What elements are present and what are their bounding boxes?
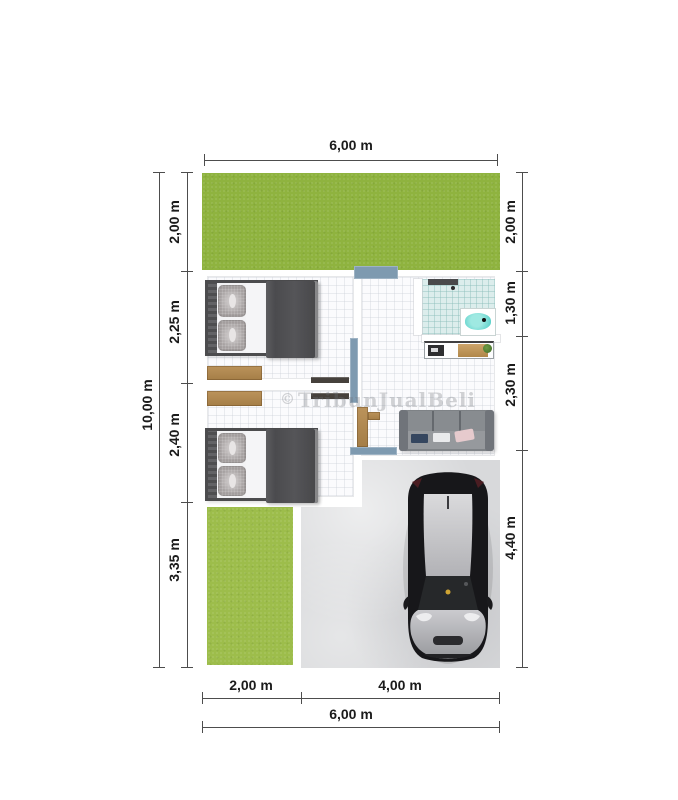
dim-left-total-line [159,172,160,668]
shower-fixture [428,279,458,285]
dim-right-seg-line [522,172,523,668]
kitchen-counter [424,341,494,359]
dim-tick [516,172,528,173]
bathtub-drain [482,318,486,322]
dim-right-seg-3: 4,40 m [502,503,518,573]
bedroom2-bed [205,428,318,501]
sofa-pillow-white [433,433,450,442]
watermark-text: TribunJualBeli [298,388,476,412]
plant [483,344,492,353]
dim-tick [181,271,193,272]
car [402,468,494,666]
sofa-back-cushions [408,411,485,431]
dim-tick [202,721,203,733]
watermark: ©TribunJualBeli [280,388,476,412]
dim-right-seg-1: 1,30 m [502,268,518,338]
dim-bottom-seg-line [202,698,500,699]
dim-left-seg-2: 2,40 m [166,400,182,470]
carport-door [350,447,397,455]
entry-door [354,266,398,279]
back-yard-grass [207,507,293,665]
floor-plan: ©TribunJualBeli [202,172,500,668]
kitchen-sink [428,345,444,356]
living-cabinet-side [368,412,380,420]
bed-blanket [266,281,318,358]
bed-blanket [266,429,318,503]
dim-tick [181,667,193,668]
dim-right-seg-0: 2,00 m [502,187,518,257]
dim-tick [499,721,500,733]
dim-bottom-seg-0: 2,00 m [211,677,291,693]
bathtub-basin [465,313,491,330]
dim-right-seg-2: 2,30 m [502,350,518,420]
watermark-symbol: © [280,390,296,408]
dim-bottom-total-label: 6,00 m [311,706,391,722]
floorplan-canvas: 6,00 m 10,00 m 2,00 m 2,25 m 2,40 m 3,35… [0,0,678,800]
dim-tick [516,667,528,668]
dim-tick [181,502,193,503]
front-yard-grass [202,173,500,270]
sofa-armrest [485,410,494,451]
bedroom1-desk [207,366,262,380]
dim-bottom-total-line [202,727,500,728]
floor-drain [451,286,455,290]
bedroom1-bed [205,280,318,356]
dim-tick [204,154,205,166]
dim-top-total-label: 6,00 m [301,137,401,153]
bed-headboard [208,283,217,353]
dim-tick [497,154,498,166]
dim-tick [499,692,500,704]
bathtub [461,309,495,335]
sofa-pillow-navy [411,434,428,443]
dim-left-seg-1: 2,25 m [166,287,182,357]
dim-bottom-seg-1: 4,00 m [360,677,440,693]
dim-tick [153,667,165,668]
bedroom2-desk [207,391,262,406]
bed-pillows [218,433,246,496]
sofa-armrest [399,410,408,451]
dim-tick [153,172,165,173]
dim-tick [181,172,193,173]
dim-left-seg-3: 3,35 m [166,525,182,595]
bed-pillows [218,285,246,351]
bed-headboard [208,431,217,498]
bedroom1-shelf [311,377,349,383]
sofa [399,410,494,451]
dim-tick [516,450,528,451]
dim-left-seg-0: 2,00 m [166,187,182,257]
dim-tick [301,692,302,704]
dim-left-seg-line [187,172,188,668]
dim-tick [202,692,203,704]
dim-tick [181,383,193,384]
bathroom-left-wall [414,279,422,335]
living-cabinet [357,407,368,447]
dim-left-total-label: 10,00 m [139,365,155,445]
dim-top-line [204,160,498,161]
